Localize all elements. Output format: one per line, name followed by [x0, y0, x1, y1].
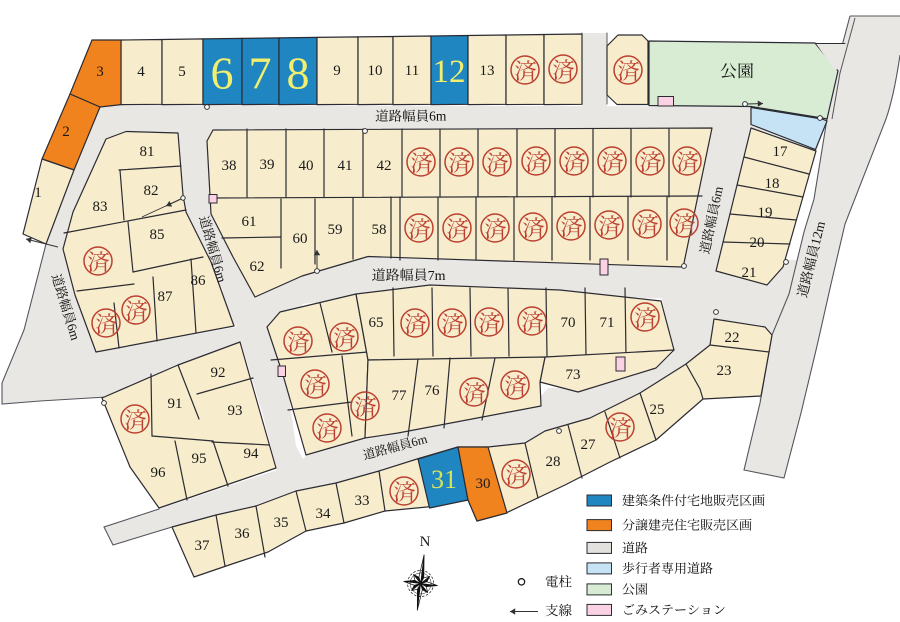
svg-text:61: 61: [242, 214, 257, 230]
svg-text:10: 10: [368, 63, 383, 79]
svg-text:22: 22: [725, 330, 740, 346]
svg-text:93: 93: [228, 403, 243, 419]
svg-text:42: 42: [377, 158, 392, 174]
svg-text:6m: 6m: [429, 109, 447, 124]
svg-text:92: 92: [211, 365, 226, 381]
svg-text:4: 4: [137, 64, 145, 80]
svg-text:37: 37: [195, 538, 211, 554]
svg-text:39: 39: [260, 157, 275, 173]
svg-text:33: 33: [355, 493, 370, 509]
svg-text:76: 76: [425, 383, 441, 399]
svg-text:20: 20: [750, 235, 765, 251]
svg-text:31: 31: [431, 465, 457, 494]
svg-text:62: 62: [250, 259, 265, 275]
svg-text:81: 81: [140, 144, 155, 160]
svg-text:71: 71: [600, 315, 615, 331]
svg-text:12: 12: [433, 54, 466, 90]
svg-text:41: 41: [338, 158, 353, 174]
svg-text:40: 40: [299, 158, 314, 174]
svg-text:N: N: [420, 534, 431, 550]
svg-text:35: 35: [274, 515, 289, 531]
svg-text:1: 1: [34, 185, 42, 201]
svg-text:6: 6: [211, 48, 234, 99]
svg-text:17: 17: [773, 144, 789, 160]
svg-text:83: 83: [93, 199, 108, 215]
svg-text:82: 82: [144, 183, 159, 199]
svg-text:59: 59: [328, 222, 343, 238]
svg-text:73: 73: [566, 367, 581, 383]
svg-text:23: 23: [717, 363, 732, 379]
svg-text:8: 8: [287, 48, 310, 99]
svg-text:11: 11: [405, 63, 419, 79]
svg-text:5: 5: [178, 64, 186, 80]
svg-text:65: 65: [369, 315, 384, 331]
svg-text:19: 19: [758, 205, 773, 221]
svg-text:58: 58: [372, 222, 387, 238]
svg-text:91: 91: [168, 396, 183, 412]
svg-text:13: 13: [480, 63, 495, 79]
svg-text:77: 77: [392, 388, 408, 404]
svg-text:60: 60: [293, 231, 308, 247]
svg-text:2: 2: [62, 124, 70, 140]
svg-text:7: 7: [249, 48, 272, 99]
svg-text:87: 87: [158, 289, 174, 305]
svg-text:34: 34: [316, 506, 332, 522]
svg-text:94: 94: [244, 446, 260, 462]
svg-text:38: 38: [222, 158, 237, 174]
svg-text:3: 3: [96, 64, 104, 80]
svg-text:28: 28: [546, 454, 561, 470]
svg-text:7m: 7m: [428, 269, 446, 284]
svg-text:9: 9: [333, 63, 341, 79]
svg-text:25: 25: [650, 402, 665, 418]
svg-text:96: 96: [151, 465, 167, 481]
svg-text:86: 86: [191, 273, 207, 289]
svg-text:36: 36: [235, 526, 251, 542]
svg-text:30: 30: [476, 476, 491, 492]
svg-text:27: 27: [581, 437, 597, 453]
svg-text:85: 85: [150, 227, 165, 243]
svg-text:18: 18: [765, 176, 780, 192]
svg-text:95: 95: [192, 451, 207, 467]
svg-text:21: 21: [742, 265, 757, 281]
svg-text:70: 70: [561, 315, 576, 331]
